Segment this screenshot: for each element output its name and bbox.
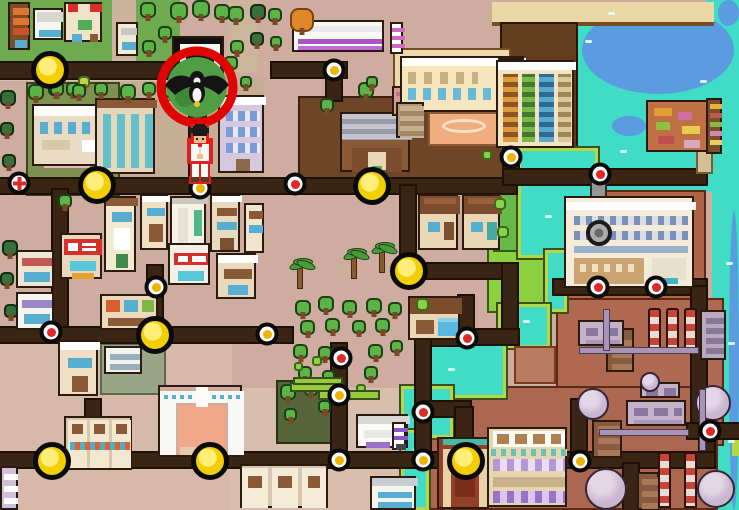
yellow-dot: [263, 330, 272, 339]
market-shelf: [8, 2, 30, 50]
tree-trunk: [330, 329, 335, 336]
map-node-medical[interactable]: [8, 172, 31, 195]
machine-4-detail: [706, 328, 724, 334]
tree-trunk: [147, 92, 152, 99]
shop-c-detail: [217, 208, 237, 216]
campus-hall-detail: [103, 114, 111, 168]
red-dot: [596, 170, 605, 179]
tree-trunk: [77, 94, 82, 101]
map-node-yellow-dot[interactable]: [500, 146, 523, 169]
market-shelf-pier-detail: [710, 131, 722, 136]
map-node-large-yellow[interactable]: [191, 442, 229, 480]
map-node-red-dot[interactable]: [412, 401, 435, 424]
station-detail: [493, 459, 565, 471]
tree: [142, 82, 156, 96]
tree-trunk: [99, 92, 104, 99]
shop-d: [244, 203, 264, 253]
tree-trunk: [274, 44, 279, 51]
channel-pier: [514, 346, 556, 384]
map-node-red-dot[interactable]: [284, 173, 307, 196]
wave-mark: [608, 12, 615, 15]
shop-tall-detail: [106, 198, 138, 206]
tree-trunk: [394, 349, 399, 356]
shop-redsign-detail: [72, 273, 94, 279]
library-pier-detail: [498, 62, 576, 70]
pool-house-detail: [438, 318, 458, 322]
warehouse-detail: [574, 246, 688, 253]
yellow-dot: [576, 457, 585, 466]
shop-60-detail: [72, 376, 88, 392]
shop-a-detail: [142, 196, 170, 202]
shops-h6-detail: [142, 300, 154, 312]
station: [487, 427, 567, 507]
wave-mark: [728, 342, 735, 345]
tree: [2, 154, 16, 168]
house-a-detail: [424, 198, 456, 204]
tree-trunk: [147, 50, 152, 57]
market-stalls-pier: [646, 100, 710, 152]
map-node-red-dot[interactable]: [330, 347, 353, 370]
red-dot: [652, 283, 661, 292]
box-row-detail: [248, 476, 262, 488]
map-node-large-yellow[interactable]: [33, 442, 71, 480]
yellow-dot: [335, 391, 344, 400]
tree-trunk: [255, 42, 260, 49]
station-detail: [533, 434, 545, 444]
shop-redroof-detail: [68, 4, 78, 12]
pipe: [604, 310, 609, 350]
tree-trunk: [8, 252, 13, 259]
machine-4-detail: [706, 338, 724, 344]
shop-redroof-detail: [90, 4, 102, 12]
market-shelf-pier-detail: [710, 140, 722, 145]
wave-mark: [620, 150, 627, 153]
station-detail: [491, 449, 567, 456]
lot-shed: [104, 346, 142, 374]
deep-water: [718, 0, 739, 26]
tree-trunk: [220, 16, 225, 23]
tree: [368, 344, 383, 359]
shop-tall-detail: [112, 212, 132, 222]
lavender-booth-detail: [4, 486, 18, 492]
tree-trunk: [380, 329, 385, 336]
tree-trunk: [305, 331, 310, 338]
shop-a: [140, 194, 168, 250]
tree-trunk: [146, 14, 151, 21]
bush: [294, 362, 303, 371]
tree-trunk: [324, 308, 329, 315]
library-pier-detail: [522, 74, 535, 142]
wave-mark: [585, 40, 592, 43]
machine-1: [578, 320, 624, 346]
tree-trunk: [244, 84, 249, 91]
map-node-large-yellow[interactable]: [353, 167, 391, 205]
shop-d-detail: [249, 211, 263, 219]
market-shelf-detail: [13, 28, 29, 35]
red-dot: [594, 283, 603, 292]
palm-trunk: [380, 252, 384, 272]
tree: [0, 122, 14, 136]
tree: [58, 194, 72, 208]
wave-mark: [523, 320, 530, 323]
shop-f-detail: [224, 269, 252, 279]
market-stalls-pier-detail: [684, 140, 700, 148]
white-gate-detail: [196, 387, 208, 407]
tree-trunk: [5, 132, 10, 139]
tree-trunk: [372, 310, 377, 317]
left-shop-a-detail: [22, 258, 52, 266]
library-pier-detail: [503, 74, 518, 142]
house-a-detail: [444, 222, 454, 240]
market-stalls-pier-detail: [682, 126, 700, 134]
tree-trunk: [301, 312, 306, 319]
machine-4-detail: [706, 348, 724, 354]
kiosk-pole: [392, 422, 406, 450]
map-node-red-dot[interactable]: [456, 327, 479, 350]
shop-d-detail: [249, 225, 263, 233]
clinic-white: [33, 8, 63, 40]
tree-trunk: [9, 314, 14, 321]
wave-mark: [700, 80, 707, 83]
tree: [2, 240, 18, 256]
tree: [390, 340, 403, 353]
house-b-detail: [471, 222, 483, 232]
wave-mark: [728, 440, 735, 443]
shop-tall-detail: [114, 228, 130, 250]
deep-water: [729, 210, 739, 510]
park-pavilion-detail: [366, 442, 390, 448]
tree: [140, 2, 156, 18]
machine-row-detail: [94, 424, 105, 434]
tree-trunk: [7, 164, 12, 171]
yellow-dot: [335, 456, 344, 465]
wave-mark: [545, 215, 552, 218]
yellow-dot: [419, 456, 428, 465]
shop-a-detail: [147, 208, 165, 216]
lavender-booth-detail: [4, 474, 18, 480]
lot-shed-detail: [110, 354, 140, 360]
small-depot: [370, 476, 416, 510]
tree-trunk: [370, 84, 375, 91]
map-node-red-dot[interactable]: [645, 276, 668, 299]
map-node-red-dot[interactable]: [699, 420, 722, 443]
shop-redsign: [60, 233, 102, 279]
tree-trunk: [286, 396, 291, 403]
left-shop-a-detail: [24, 272, 50, 282]
box-row-detail: [242, 468, 268, 508]
kiosk-pole-detail: [394, 436, 408, 440]
house-b-detail: [487, 222, 497, 240]
shop-tall: [104, 196, 136, 272]
tree-trunk: [323, 356, 328, 363]
sign-store-detail: [298, 46, 382, 50]
shop-walkway-detail: [122, 42, 136, 50]
trestle-c-detail: [642, 477, 658, 509]
pipe: [600, 430, 688, 435]
map-node-large-yellow[interactable]: [390, 252, 428, 290]
station-detail: [551, 434, 561, 444]
tree: [268, 8, 282, 22]
shop-a-detail: [149, 224, 163, 242]
shop-bang: [168, 243, 210, 285]
red-dot: [419, 408, 428, 417]
map-node-large-yellow[interactable]: [447, 442, 485, 480]
sign-store-detail: [298, 39, 382, 44]
lavender-booth: [0, 466, 18, 510]
tree-trunk: [298, 355, 303, 362]
tree-trunk: [369, 376, 374, 383]
tree: [250, 4, 266, 20]
autumn-tree: [290, 8, 314, 32]
lavender-booth-detail: [4, 498, 18, 504]
tree: [320, 98, 334, 112]
shop-redroof-detail: [72, 34, 82, 42]
shop-redroof-detail: [78, 20, 92, 30]
school-left-detail: [42, 140, 70, 150]
shop-f-detail: [228, 285, 248, 295]
red-dot: [47, 328, 56, 337]
machine-2-detail: [674, 408, 682, 416]
left-shop-a: [16, 250, 54, 288]
tree: [318, 296, 334, 312]
left-shop-b-detail: [22, 300, 52, 308]
tree: [170, 2, 188, 20]
map-node-red-dot[interactable]: [587, 276, 610, 299]
map-node-yellow-dot[interactable]: [569, 450, 592, 473]
tree: [295, 300, 311, 316]
tree: [375, 318, 390, 333]
trestle-c: [637, 472, 659, 510]
yellow-dot: [330, 66, 339, 75]
map-node-gray[interactable]: [586, 220, 612, 246]
shop-60: [58, 340, 98, 396]
machine-2-detail: [654, 408, 668, 416]
map-node-yellow-dot[interactable]: [412, 449, 435, 472]
pink-banner: [390, 22, 403, 54]
library-pier: [496, 60, 574, 148]
deep-water: [612, 116, 646, 136]
machine-2: [626, 400, 686, 426]
map-node-large-yellow[interactable]: [136, 316, 174, 354]
map-node-red-dot[interactable]: [40, 321, 63, 344]
tree-trunk: [63, 204, 68, 211]
machine-1-detail: [586, 328, 598, 336]
machine-row: [64, 416, 132, 470]
tree: [270, 36, 282, 48]
shop-60-detail: [60, 342, 100, 350]
market-stalls-pier-detail: [656, 122, 670, 130]
tree: [352, 320, 366, 334]
tree: [240, 76, 252, 88]
machine-2-detail: [634, 408, 648, 416]
tree-trunk: [34, 96, 39, 103]
tree: [120, 84, 136, 100]
map-node-large-yellow[interactable]: [78, 166, 116, 204]
yellow-dot: [152, 283, 161, 292]
palm-trunk: [298, 268, 302, 288]
tree: [366, 76, 378, 88]
map-node-yellow-dot[interactable]: [145, 276, 168, 299]
market-shelf-pier: [706, 98, 722, 154]
shop-c-detail: [217, 222, 237, 230]
bush: [416, 298, 429, 311]
storage-tank: [640, 372, 660, 392]
tree: [192, 0, 210, 18]
lot-shed-detail: [110, 364, 140, 370]
shop-redroof-detail: [90, 34, 98, 42]
shop-redsign-detail: [82, 243, 96, 246]
market-stalls-pier-detail: [678, 112, 692, 120]
school-stands: [396, 102, 424, 138]
market-shelf-detail: [15, 40, 27, 48]
striped-chimney: [658, 452, 671, 508]
box-row-detail: [302, 468, 326, 508]
box-row-detail: [308, 476, 320, 488]
shops-h6-detail: [124, 300, 138, 312]
tree: [0, 90, 16, 106]
shop-redroof: [64, 2, 102, 42]
market-shelf-pier-detail: [710, 113, 722, 118]
shop-f-detail: [218, 255, 258, 263]
library-pier-detail: [539, 74, 554, 142]
box-row: [240, 464, 328, 508]
shop-c-detail: [212, 196, 242, 202]
tree-trunk: [5, 282, 10, 289]
market-shelf-pier-detail: [710, 122, 722, 127]
box-row-detail: [278, 476, 292, 488]
tree-trunk: [55, 92, 60, 99]
trestle-b: [592, 420, 622, 458]
tree: [293, 344, 308, 359]
tree-trunk: [322, 409, 327, 416]
tree-trunk: [199, 14, 204, 21]
machine-row-detail: [116, 424, 127, 434]
wave-mark: [726, 262, 733, 265]
map-node-yellow-dot[interactable]: [256, 323, 279, 346]
pink-banner-detail: [392, 28, 405, 32]
tree: [388, 302, 402, 316]
small-depot-detail: [378, 492, 412, 498]
player-character[interactable]: [184, 124, 216, 186]
shop-60-detail: [68, 358, 92, 368]
pool-house-detail: [416, 320, 434, 334]
tree-trunk: [273, 18, 278, 25]
warehouse-detail: [566, 202, 696, 210]
shop-c-detail: [220, 238, 234, 250]
medical-cross-icon: [13, 181, 26, 185]
tree-trunk: [393, 312, 398, 319]
school-stands-detail: [400, 106, 424, 138]
palm-trunk: [352, 258, 356, 278]
campus-annex-detail: [226, 143, 260, 153]
tree-trunk: [177, 16, 182, 23]
bush: [494, 198, 506, 210]
shop-redsign-detail: [70, 261, 96, 271]
tree-trunk: [288, 417, 293, 424]
tree: [228, 6, 244, 22]
machine-4-detail: [706, 318, 724, 324]
map-node-yellow-dot[interactable]: [323, 59, 346, 82]
tree-trunk: [256, 16, 261, 23]
red-dot: [706, 427, 715, 436]
tree: [158, 26, 172, 40]
tree: [4, 304, 18, 318]
shop-redsign-detail: [82, 248, 96, 251]
tree-trunk: [234, 18, 239, 25]
clinic-white-detail: [39, 30, 61, 37]
red-dot: [337, 354, 346, 363]
storage-tank: [585, 468, 627, 510]
station-detail: [497, 434, 509, 444]
shops-h6-detail: [106, 300, 120, 312]
market-shelf-pier-detail: [710, 104, 722, 109]
track-oval: [442, 119, 486, 133]
campus-hall-detail: [131, 114, 139, 168]
tree-trunk: [163, 36, 168, 43]
red-dot: [463, 334, 472, 343]
map-node-yellow-dot[interactable]: [328, 384, 351, 407]
machine-2-detail: [634, 420, 682, 424]
highlight-ring[interactable]: [155, 45, 239, 129]
campus-hall: [95, 98, 155, 174]
bird-statue-icon: [155, 45, 239, 129]
shop-b-detail: [178, 208, 188, 248]
shop-tall-detail: [116, 254, 128, 268]
tree-trunk: [300, 28, 305, 35]
market-stalls-pier-detail: [654, 108, 672, 116]
striped-chimney: [684, 452, 697, 508]
map-node-yellow-dot[interactable]: [328, 449, 351, 472]
tree: [0, 272, 14, 286]
red-dot: [291, 180, 300, 189]
bush: [482, 150, 492, 160]
tree: [250, 32, 264, 46]
box-row-detail: [272, 468, 298, 508]
map-node-large-yellow[interactable]: [31, 51, 69, 89]
tree: [325, 318, 340, 333]
machine-row-detail: [72, 424, 83, 434]
tree: [366, 298, 382, 314]
tree-trunk: [373, 355, 378, 362]
shop-redsign-detail: [68, 243, 78, 251]
tree-trunk: [325, 108, 330, 115]
storage-tank: [577, 388, 609, 420]
market-stalls-pier-detail: [658, 136, 674, 144]
campus-hall-detail: [117, 114, 125, 168]
house-a: [418, 194, 458, 250]
station-detail: [493, 477, 565, 487]
pipe: [580, 348, 698, 353]
tree-trunk: [309, 392, 314, 399]
small-depot-detail: [372, 478, 418, 486]
shop-bang-detail: [178, 271, 204, 281]
market-shelf-detail: [13, 8, 29, 15]
bush: [497, 226, 509, 238]
tree: [72, 84, 86, 98]
market-shelf-detail: [13, 18, 29, 25]
tree-trunk: [347, 311, 352, 318]
library-pier-detail: [558, 74, 571, 142]
tree-trunk: [364, 94, 369, 101]
map-node-red-dot[interactable]: [589, 163, 612, 186]
house-a-detail: [428, 222, 440, 232]
tree: [300, 320, 315, 335]
pink-banner-detail: [392, 36, 405, 40]
station-detail: [515, 434, 527, 444]
small-depot-detail: [378, 502, 412, 508]
tree-trunk: [6, 102, 11, 109]
station-detail: [493, 491, 565, 503]
